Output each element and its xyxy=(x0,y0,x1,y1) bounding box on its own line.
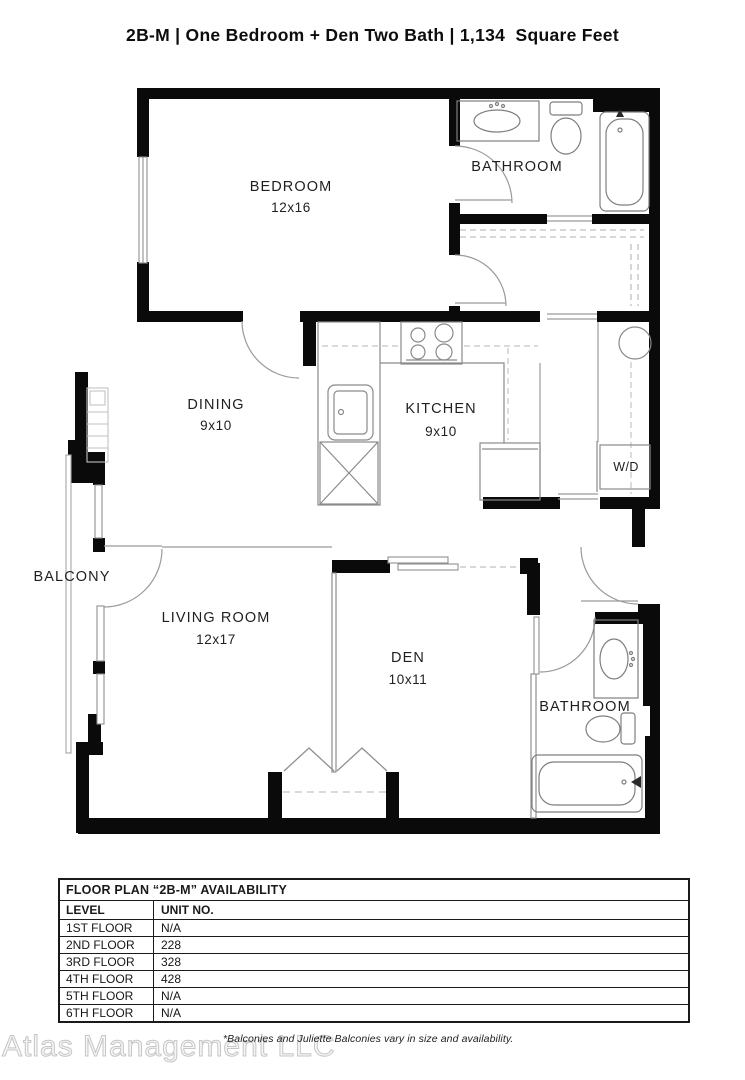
bathroom-top-fixtures xyxy=(457,101,649,211)
floor-plan-flyer: 2B-M | One Bedroom + Den Two Bath | 1,13… xyxy=(0,0,745,1080)
sink-icon xyxy=(594,620,638,698)
balcony-footnote: *Balconies and Juliette Balconies vary i… xyxy=(223,1033,513,1045)
dishwasher-icon xyxy=(320,442,378,504)
table-row: 4TH FLOOR 428 xyxy=(60,970,688,987)
water-heater-icon xyxy=(619,327,651,359)
room-dims-kitchen: 9x10 xyxy=(425,425,457,439)
availability-table-header-row: LEVEL UNIT NO. xyxy=(60,900,688,919)
bathroom-bottom-fixtures xyxy=(532,620,642,812)
closet-rod-lines xyxy=(460,230,644,567)
level-cell: 4TH FLOOR xyxy=(60,971,154,987)
room-label-dining: DINING xyxy=(187,398,244,413)
room-label-washer-dryer: W/D xyxy=(613,461,639,474)
column-header-unit-no: UNIT NO. xyxy=(154,901,688,919)
level-cell: 3RD FLOOR xyxy=(60,954,154,970)
stove-icon xyxy=(401,322,462,364)
thin-walls xyxy=(332,573,536,818)
unit-cell: N/A xyxy=(154,1005,688,1021)
room-label-bathroom-top: BATHROOM xyxy=(471,160,563,175)
availability-table: FLOOR PLAN “2B-M” AVAILABILITY LEVEL UNI… xyxy=(58,878,690,1023)
room-label-den: DEN xyxy=(391,651,425,666)
balcony-railing xyxy=(66,455,71,753)
table-row: 5TH FLOOR N/A xyxy=(60,987,688,1004)
level-cell: 2ND FLOOR xyxy=(60,937,154,953)
refrigerator-icon xyxy=(480,443,540,500)
sink-icon xyxy=(457,101,539,141)
room-label-balcony: BALCONY xyxy=(34,570,111,585)
room-label-bedroom: BEDROOM xyxy=(250,180,333,195)
level-cell: 6TH FLOOR xyxy=(60,1005,154,1021)
room-dims-den: 10x11 xyxy=(389,673,428,687)
unit-cell: 228 xyxy=(154,937,688,953)
unit-cell: 428 xyxy=(154,971,688,987)
table-row: 6TH FLOOR N/A xyxy=(60,1004,688,1021)
bathtub-icon xyxy=(600,109,649,211)
walls xyxy=(68,88,660,834)
windows xyxy=(95,157,458,724)
unit-cell: N/A xyxy=(154,988,688,1004)
unit-cell: 328 xyxy=(154,954,688,970)
kitchen-counter xyxy=(318,322,380,505)
availability-table-title: FLOOR PLAN “2B-M” AVAILABILITY xyxy=(60,880,688,900)
table-row: 3RD FLOOR 328 xyxy=(60,953,688,970)
doors xyxy=(104,146,638,674)
table-row: 2ND FLOOR 228 xyxy=(60,936,688,953)
column-header-level: LEVEL xyxy=(60,901,154,919)
room-dims-living-room: 12x17 xyxy=(196,633,236,647)
room-label-bathroom-bottom: BATHROOM xyxy=(539,700,631,715)
dining-niche xyxy=(87,388,108,462)
table-row: 1ST FLOOR N/A xyxy=(60,919,688,936)
toilet-icon xyxy=(550,102,582,154)
toilet-icon xyxy=(586,713,635,744)
bathtub-icon xyxy=(532,755,642,812)
level-cell: 1ST FLOOR xyxy=(60,920,154,936)
level-cell: 5TH FLOOR xyxy=(60,988,154,1004)
room-dims-dining: 9x10 xyxy=(200,419,232,433)
room-label-kitchen: KITCHEN xyxy=(405,402,476,417)
kitchen-sink-icon xyxy=(328,385,373,440)
room-label-living-room: LIVING ROOM xyxy=(162,611,271,626)
room-dims-bedroom: 12x16 xyxy=(271,201,311,215)
unit-cell: N/A xyxy=(154,920,688,936)
